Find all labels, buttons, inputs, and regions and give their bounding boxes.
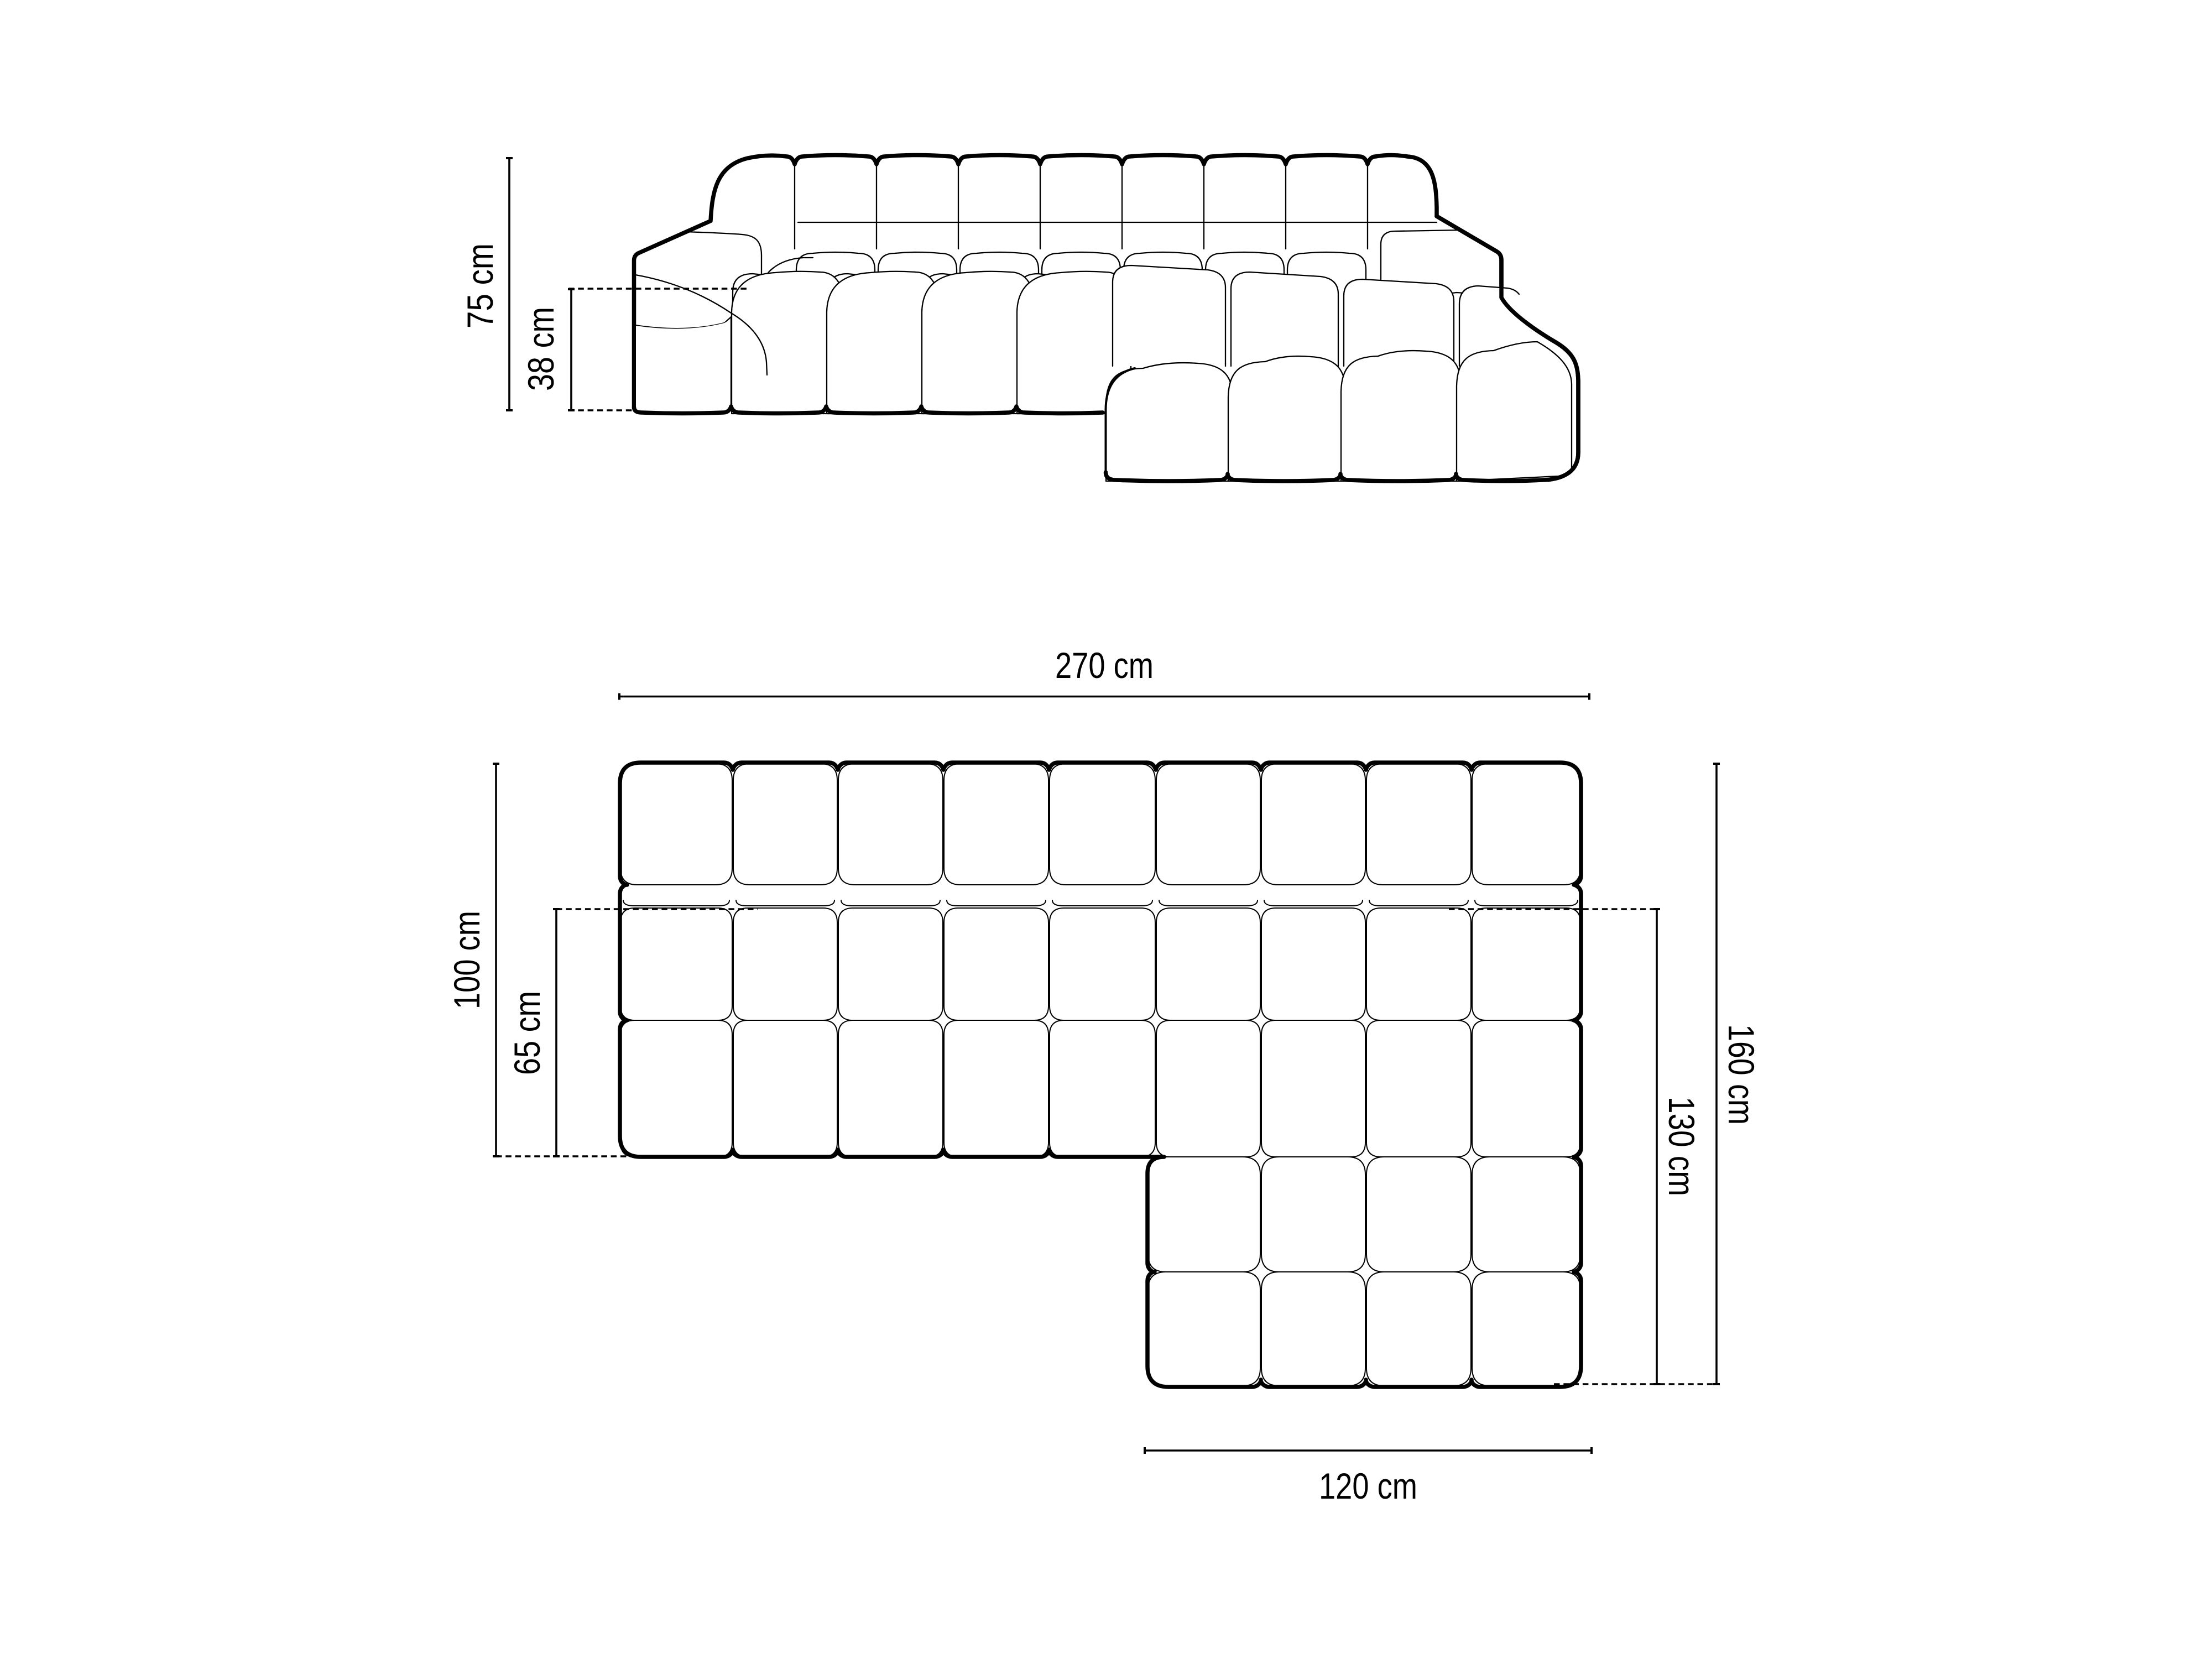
svg-text:38 cm: 38 cm [520, 307, 561, 391]
svg-text:130 cm: 130 cm [1661, 1097, 1702, 1196]
svg-text:100 cm: 100 cm [446, 911, 487, 1009]
svg-text:160 cm: 160 cm [1721, 1024, 1762, 1125]
svg-text:120 cm: 120 cm [1319, 1465, 1417, 1506]
svg-text:270 cm: 270 cm [1055, 645, 1154, 686]
svg-text:75 cm: 75 cm [460, 243, 500, 328]
svg-text:65 cm: 65 cm [507, 991, 547, 1075]
